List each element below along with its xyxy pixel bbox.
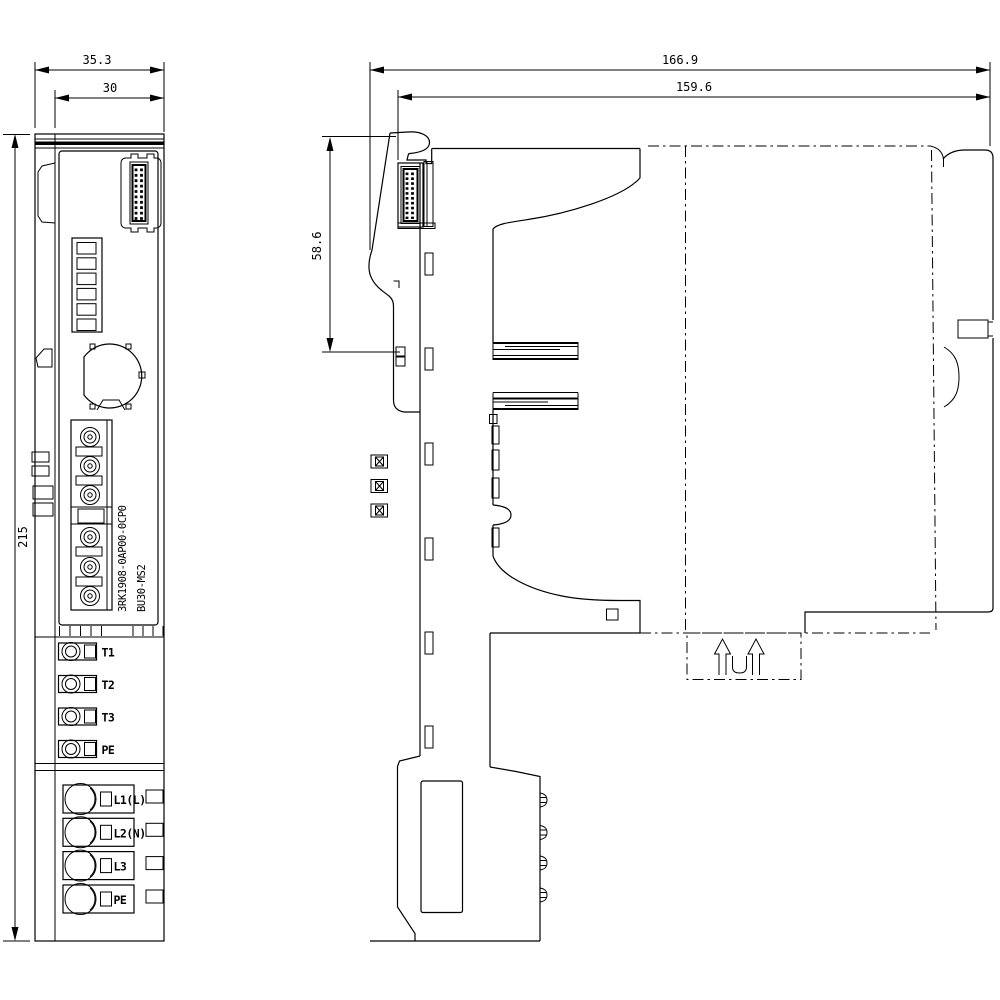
- power-terminal-label-l1: L1(L): [114, 793, 146, 807]
- dimension-front-height: 215: [3, 134, 30, 941]
- dim-label-166-9: 166.9: [662, 53, 698, 67]
- dim-label-215: 215: [16, 526, 30, 548]
- mounted-module-solid: [805, 146, 993, 633]
- dimension-front-overall-width: 35.3: [35, 53, 164, 132]
- dim-label-35-3: 35.3: [83, 53, 112, 67]
- front-view: 3RK1908-0AP00-0CP0 BU30-MS2 T1: [32, 134, 164, 941]
- module-name-label: BU30-MS2: [136, 565, 148, 612]
- dimension-front-device-width: 30: [55, 81, 164, 128]
- front-screw-terminal-block: [71, 420, 112, 610]
- test-terminal-label-pe: PE: [102, 743, 115, 757]
- test-terminal-label-t2: T2: [102, 678, 115, 692]
- mounted-module-phantom: [640, 146, 936, 680]
- side-bottom-terminal-block: [370, 756, 547, 941]
- insertion-direction-arrows: [715, 639, 765, 675]
- dim-label-30: 30: [103, 81, 117, 95]
- side-test-screw-symbols: [371, 455, 388, 517]
- order-number-label: 3RK1908-0AP00-0CP0: [117, 505, 129, 612]
- screw-terminals: [81, 428, 100, 606]
- front-rotary-element: [84, 344, 145, 410]
- power-terminal-label-l2: L2(N): [114, 826, 146, 840]
- technical-drawing-canvas: 3RK1908-0AP00-0CP0 BU30-MS2 T1: [0, 0, 1000, 1000]
- side-screw-heads: [540, 793, 547, 902]
- power-terminal-row-pe: PE: [63, 884, 163, 915]
- dim-label-58-6: 58.6: [310, 232, 324, 261]
- test-terminal-label-t3: T3: [102, 711, 115, 725]
- test-terminal-row-t3: T3: [59, 708, 115, 726]
- side-view: [369, 132, 993, 941]
- test-terminal-row-pe: PE: [59, 740, 115, 758]
- test-terminal-row-t2: T2: [59, 675, 115, 693]
- front-hatch-strip: [35, 626, 164, 637]
- side-bus-connector: [398, 162, 435, 229]
- drawing-svg: 3RK1908-0AP00-0CP0 BU30-MS2 T1: [0, 0, 1000, 1000]
- test-terminal-row-t1: T1: [59, 643, 115, 661]
- power-terminal-label-l3: L3: [114, 860, 127, 874]
- power-terminal-row-l3: L3: [63, 850, 163, 881]
- front-test-terminals: T1 T2 T3 PE: [59, 643, 115, 759]
- din-rail-section: [493, 342, 578, 410]
- power-terminal-row-l2: L2(N): [63, 817, 163, 848]
- power-terminal-row-l1: L1(L): [63, 784, 163, 815]
- front-dip-switch-block: [72, 238, 102, 332]
- side-face-slots: [425, 253, 433, 748]
- dim-label-159-6: 159.6: [676, 80, 712, 94]
- front-bus-connector: [121, 154, 161, 232]
- power-terminal-label-pe: PE: [114, 893, 127, 907]
- test-terminal-label-t1: T1: [102, 646, 115, 660]
- din-rail-clip: [369, 132, 432, 412]
- dimension-side-upper-section: 58.6: [310, 137, 400, 353]
- front-power-terminals: L1(L) L2(N) L3: [63, 784, 163, 915]
